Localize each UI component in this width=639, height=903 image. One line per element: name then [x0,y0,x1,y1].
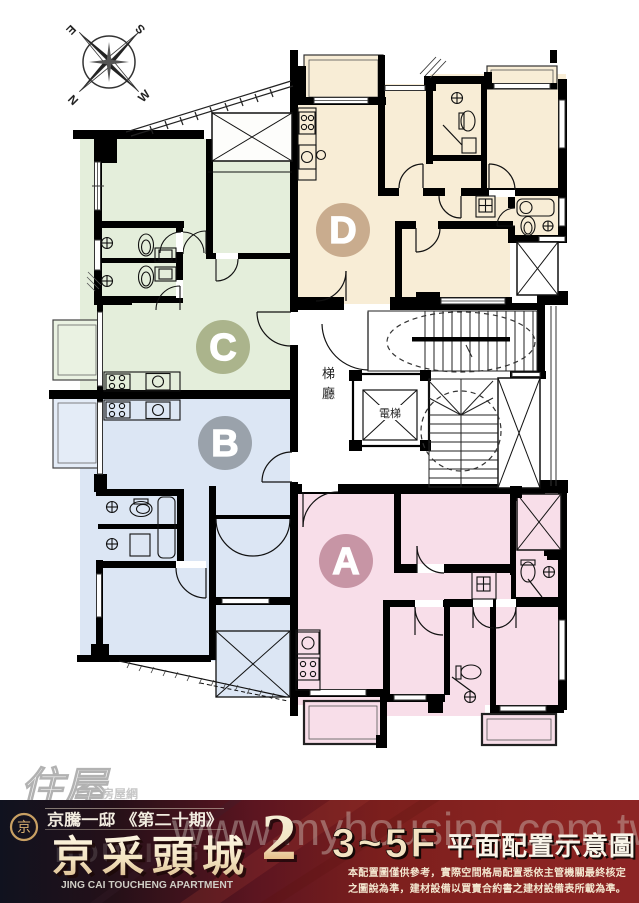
svg-text:2: 2 [261,801,297,874]
svg-text:京采頭城: 京采頭城 [52,834,252,881]
svg-text:JING CAI TOUCHENG APARTMENT: JING CAI TOUCHENG APARTMENT [61,879,234,891]
svg-text:京: 京 [17,819,31,835]
svg-text:廳: 廳 [322,386,335,401]
svg-text:本配置圖僅供參考，實際空間格局配置悉依主管機關最終核定: 本配置圖僅供參考，實際空間格局配置悉依主管機關最終核定 [348,866,626,879]
svg-text:D: D [329,210,356,252]
svg-text:之圖說為準，建材設備以買賣合約書之建材設備表所載為準。: 之圖說為準，建材設備以買賣合約書之建材設備表所載為準。 [348,882,626,895]
svg-text:梯: 梯 [322,366,335,381]
svg-text:B: B [211,423,238,465]
svg-text:平面配置示意圖: 平面配置示意圖 [447,831,636,861]
svg-text:3~5F: 3~5F [332,820,439,866]
svg-text:A: A [332,541,359,583]
svg-text:房屋網: 房屋網 [102,786,138,801]
svg-text:C: C [209,327,236,369]
svg-text:電梯: 電梯 [379,407,401,420]
svg-text:京騰一邸 《第二十期》: 京騰一邸 《第二十期》 [47,810,223,829]
